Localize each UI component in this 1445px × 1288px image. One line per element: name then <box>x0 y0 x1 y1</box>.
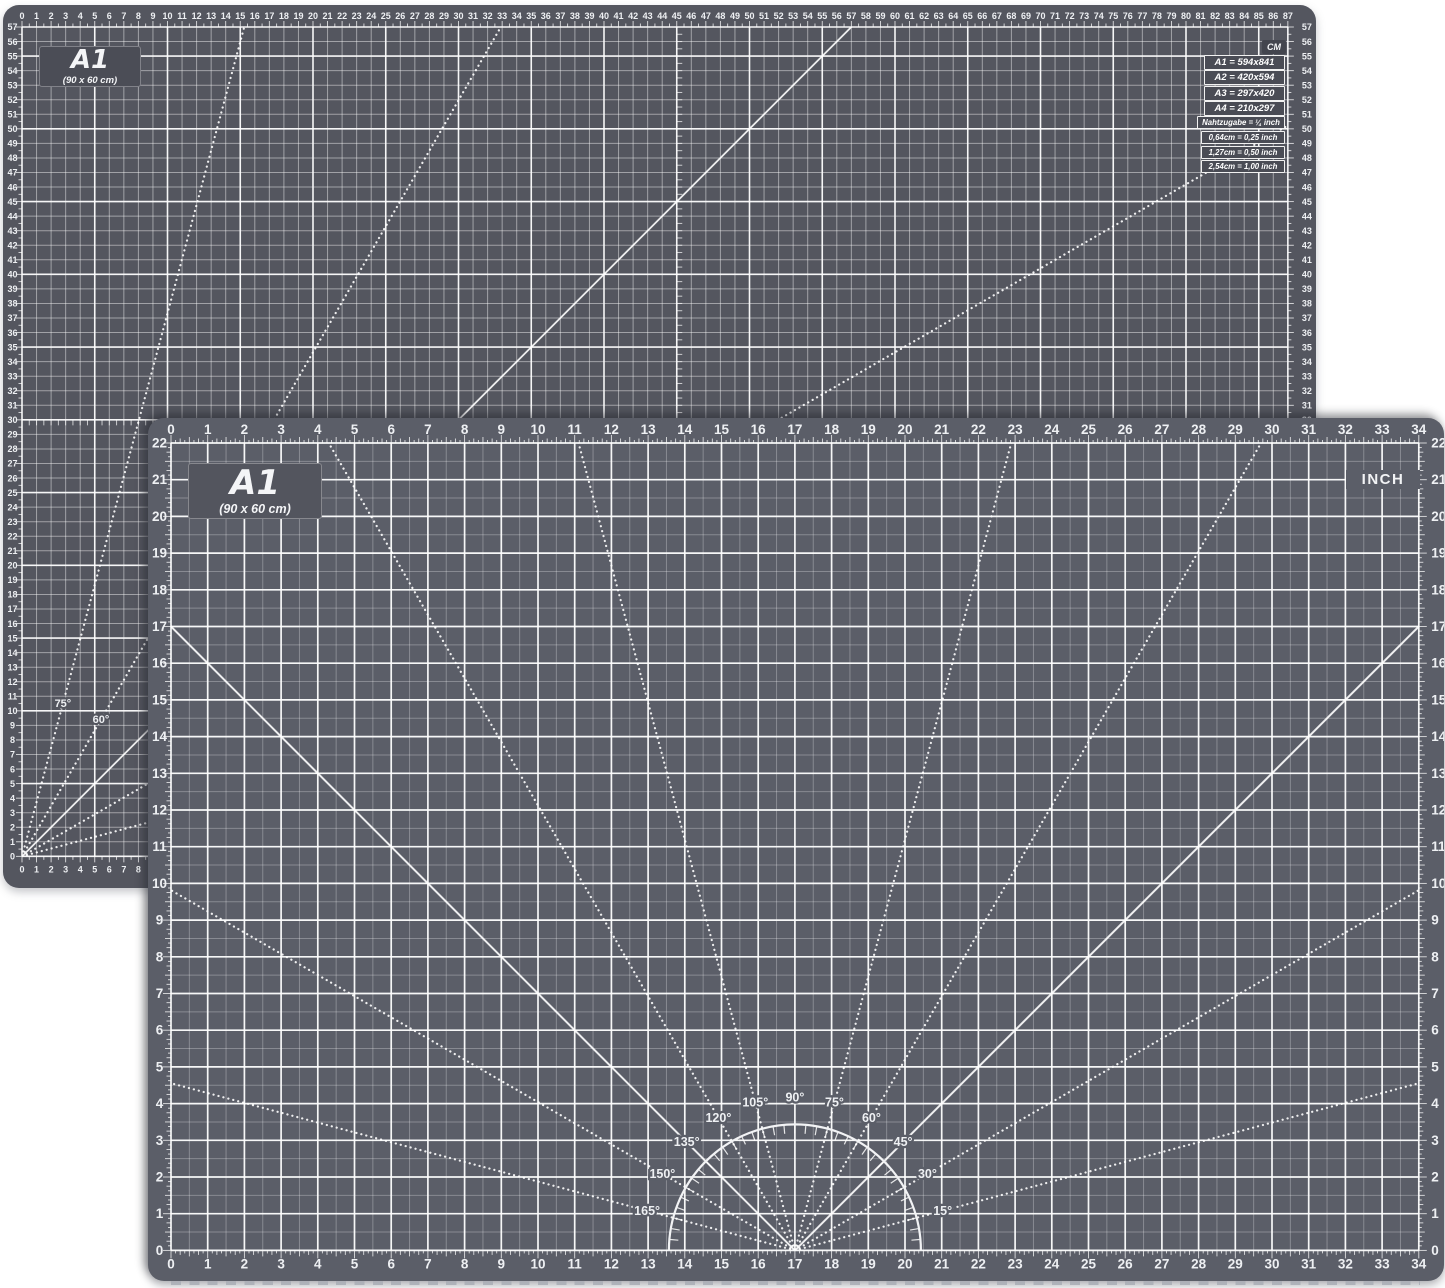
svg-text:30: 30 <box>1264 422 1279 437</box>
svg-text:40: 40 <box>7 270 17 280</box>
svg-text:30: 30 <box>1264 1256 1279 1271</box>
svg-text:79: 79 <box>1166 11 1176 21</box>
svg-text:7: 7 <box>121 864 126 874</box>
svg-text:13: 13 <box>1431 766 1444 781</box>
svg-text:35: 35 <box>7 342 17 352</box>
svg-text:31: 31 <box>1301 1256 1317 1271</box>
svg-text:0: 0 <box>10 852 15 862</box>
svg-text:13: 13 <box>206 11 216 21</box>
svg-text:120°: 120° <box>705 1111 731 1125</box>
svg-text:45°: 45° <box>894 1135 913 1149</box>
svg-text:37: 37 <box>1302 313 1312 323</box>
svg-text:25: 25 <box>381 11 391 21</box>
svg-text:12: 12 <box>192 11 202 21</box>
svg-text:24: 24 <box>7 502 17 512</box>
svg-text:49: 49 <box>730 11 740 21</box>
svg-text:32: 32 <box>483 11 493 21</box>
svg-text:29: 29 <box>1228 422 1243 437</box>
svg-text:65: 65 <box>963 11 973 21</box>
svg-text:44: 44 <box>657 11 667 21</box>
svg-text:14: 14 <box>677 422 693 437</box>
svg-text:57: 57 <box>7 22 17 32</box>
svg-text:0: 0 <box>1431 1243 1439 1258</box>
svg-text:33: 33 <box>1302 371 1312 381</box>
svg-text:31: 31 <box>1302 401 1312 411</box>
svg-text:7: 7 <box>10 750 15 760</box>
svg-text:19: 19 <box>861 1256 876 1271</box>
svg-text:30: 30 <box>453 11 463 21</box>
svg-text:75°: 75° <box>55 698 72 710</box>
svg-text:34: 34 <box>1411 1256 1427 1271</box>
svg-text:10: 10 <box>530 1256 545 1271</box>
svg-text:58: 58 <box>861 11 871 21</box>
svg-text:22: 22 <box>971 422 986 437</box>
svg-text:19: 19 <box>152 546 167 561</box>
svg-text:30: 30 <box>7 415 17 425</box>
svg-text:11: 11 <box>152 839 167 854</box>
svg-text:3: 3 <box>277 422 285 437</box>
svg-text:105°: 105° <box>742 1096 768 1110</box>
svg-text:12: 12 <box>604 1256 619 1271</box>
svg-text:3: 3 <box>63 864 68 874</box>
svg-text:55: 55 <box>817 11 827 21</box>
svg-text:15: 15 <box>1431 692 1444 707</box>
svg-text:1: 1 <box>10 837 15 847</box>
svg-text:15: 15 <box>235 11 245 21</box>
svg-text:17: 17 <box>152 619 167 634</box>
mat-dimensions: (90 x 60 cm) <box>63 75 117 86</box>
svg-text:11: 11 <box>1431 839 1444 854</box>
svg-text:21: 21 <box>152 472 168 487</box>
svg-text:4: 4 <box>78 864 83 874</box>
svg-text:33: 33 <box>1375 1256 1391 1271</box>
svg-text:1: 1 <box>204 422 212 437</box>
svg-text:1: 1 <box>34 11 39 21</box>
svg-text:33: 33 <box>7 371 17 381</box>
svg-text:38: 38 <box>7 299 17 309</box>
svg-text:15°: 15° <box>933 1204 952 1218</box>
svg-text:51: 51 <box>759 11 769 21</box>
svg-text:42: 42 <box>7 240 17 250</box>
svg-text:60: 60 <box>890 11 900 21</box>
svg-text:68: 68 <box>1006 11 1016 21</box>
svg-text:4: 4 <box>314 422 322 437</box>
svg-text:24: 24 <box>366 11 376 21</box>
svg-text:19: 19 <box>293 11 303 21</box>
svg-text:29: 29 <box>1228 1256 1243 1271</box>
svg-text:15: 15 <box>152 692 168 707</box>
svg-text:14: 14 <box>1431 729 1444 744</box>
svg-text:16: 16 <box>7 619 17 629</box>
svg-text:21: 21 <box>7 546 17 556</box>
svg-text:12: 12 <box>152 803 167 818</box>
svg-text:52: 52 <box>774 11 784 21</box>
svg-text:33: 33 <box>1375 422 1391 437</box>
svg-text:28: 28 <box>7 444 17 454</box>
svg-text:4: 4 <box>10 793 15 803</box>
svg-text:17: 17 <box>1431 619 1444 634</box>
svg-text:56: 56 <box>832 11 842 21</box>
svg-text:3: 3 <box>1431 1133 1439 1148</box>
svg-text:34: 34 <box>1302 357 1312 367</box>
svg-text:10: 10 <box>7 706 17 716</box>
svg-text:26: 26 <box>395 11 405 21</box>
svg-text:50: 50 <box>7 124 17 134</box>
svg-text:0: 0 <box>156 1243 164 1258</box>
svg-text:24: 24 <box>1044 1256 1060 1271</box>
svg-text:36: 36 <box>1302 328 1312 338</box>
svg-text:31: 31 <box>7 401 17 411</box>
svg-text:37: 37 <box>7 313 17 323</box>
svg-text:25: 25 <box>1081 422 1097 437</box>
svg-text:21: 21 <box>934 422 950 437</box>
svg-text:41: 41 <box>1302 255 1312 265</box>
svg-text:23: 23 <box>7 517 17 527</box>
svg-text:18: 18 <box>7 590 17 600</box>
unit-label-inch: INCH <box>1346 470 1420 489</box>
svg-text:8: 8 <box>10 735 15 745</box>
svg-text:35: 35 <box>526 11 536 21</box>
svg-text:3: 3 <box>277 1256 285 1271</box>
svg-text:34: 34 <box>512 11 522 21</box>
svg-text:29: 29 <box>7 430 17 440</box>
svg-text:22: 22 <box>337 11 347 21</box>
svg-text:55: 55 <box>7 51 17 61</box>
svg-text:2: 2 <box>1431 1170 1439 1185</box>
inch-grid-graphics: 15°30°45°60°75°90°105°120°135°150°165°00… <box>148 418 1444 1281</box>
svg-text:8: 8 <box>156 949 164 964</box>
svg-text:46: 46 <box>7 182 17 192</box>
svg-text:56: 56 <box>7 37 17 47</box>
svg-text:10: 10 <box>152 876 167 891</box>
svg-text:4: 4 <box>314 1256 322 1271</box>
svg-text:60°: 60° <box>862 1111 881 1125</box>
svg-text:54: 54 <box>7 66 17 76</box>
svg-text:22: 22 <box>1431 436 1444 451</box>
svg-text:53: 53 <box>7 80 17 90</box>
svg-text:15: 15 <box>7 633 17 643</box>
svg-text:150°: 150° <box>649 1167 675 1181</box>
svg-text:9: 9 <box>10 721 15 731</box>
svg-text:12: 12 <box>7 677 17 687</box>
svg-text:87: 87 <box>1283 11 1293 21</box>
svg-text:52: 52 <box>7 95 17 105</box>
protractor-rays <box>148 418 1444 1250</box>
svg-text:23: 23 <box>352 11 362 21</box>
svg-text:15: 15 <box>714 422 730 437</box>
svg-text:29: 29 <box>439 11 449 21</box>
svg-text:4: 4 <box>1431 1096 1439 1111</box>
svg-text:90°: 90° <box>785 1090 804 1104</box>
svg-text:59: 59 <box>875 11 885 21</box>
svg-text:5: 5 <box>92 11 97 21</box>
svg-text:135°: 135° <box>674 1135 700 1149</box>
svg-text:30°: 30° <box>918 1167 937 1181</box>
svg-text:1: 1 <box>204 1256 212 1271</box>
svg-text:21: 21 <box>934 1256 950 1271</box>
svg-text:9: 9 <box>498 422 506 437</box>
svg-text:61: 61 <box>905 11 915 21</box>
svg-text:37: 37 <box>555 11 565 21</box>
svg-text:4: 4 <box>156 1096 164 1111</box>
svg-text:42: 42 <box>628 11 638 21</box>
svg-text:54: 54 <box>1302 66 1312 76</box>
svg-text:25: 25 <box>1081 1256 1097 1271</box>
svg-text:25: 25 <box>7 488 17 498</box>
svg-text:32: 32 <box>7 386 17 396</box>
svg-text:48: 48 <box>715 11 725 21</box>
svg-text:16: 16 <box>751 1256 767 1271</box>
svg-text:34: 34 <box>7 357 17 367</box>
svg-text:38: 38 <box>570 11 580 21</box>
svg-text:6: 6 <box>107 11 112 21</box>
svg-text:21: 21 <box>1431 472 1444 487</box>
svg-text:2: 2 <box>10 822 15 832</box>
svg-text:22: 22 <box>7 531 17 541</box>
svg-text:50: 50 <box>1302 124 1312 134</box>
svg-text:16: 16 <box>751 422 767 437</box>
svg-text:16: 16 <box>250 11 260 21</box>
svg-text:18: 18 <box>824 422 840 437</box>
svg-text:69: 69 <box>1021 11 1031 21</box>
svg-text:31: 31 <box>1301 422 1317 437</box>
cutting-mat-front-inch-side: 15°30°45°60°75°90°105°120°135°150°165°00… <box>148 418 1444 1281</box>
svg-text:11: 11 <box>568 422 583 437</box>
svg-text:18: 18 <box>1431 582 1444 597</box>
svg-text:9: 9 <box>498 1256 506 1271</box>
svg-text:64: 64 <box>948 11 958 21</box>
svg-text:45: 45 <box>7 197 17 207</box>
svg-text:9: 9 <box>1431 913 1439 928</box>
mat-dimensions: (90 x 60 cm) <box>219 502 291 516</box>
svg-text:18: 18 <box>152 582 168 597</box>
svg-text:23: 23 <box>1008 422 1024 437</box>
svg-text:11: 11 <box>8 692 18 702</box>
svg-text:5: 5 <box>156 1059 164 1074</box>
svg-text:67: 67 <box>992 11 1002 21</box>
svg-text:8: 8 <box>136 864 141 874</box>
svg-text:18: 18 <box>279 11 289 21</box>
svg-text:17: 17 <box>264 11 274 21</box>
svg-text:32: 32 <box>1302 386 1312 396</box>
svg-text:5: 5 <box>1431 1059 1439 1074</box>
svg-text:39: 39 <box>584 11 594 21</box>
svg-text:80: 80 <box>1181 11 1191 21</box>
svg-text:27: 27 <box>7 459 17 469</box>
svg-text:6: 6 <box>10 764 15 774</box>
svg-text:10: 10 <box>530 422 545 437</box>
svg-text:42: 42 <box>1302 240 1312 250</box>
svg-text:17: 17 <box>787 1256 802 1271</box>
svg-text:66: 66 <box>977 11 987 21</box>
svg-text:12: 12 <box>604 422 619 437</box>
svg-text:53: 53 <box>1302 80 1312 90</box>
mat-size-badge: A1 (90 x 60 cm) <box>188 463 322 519</box>
svg-text:20: 20 <box>152 509 167 524</box>
svg-text:8: 8 <box>1431 949 1439 964</box>
svg-text:52: 52 <box>1302 95 1312 105</box>
svg-text:16: 16 <box>1431 656 1444 671</box>
svg-text:6: 6 <box>156 1023 164 1038</box>
svg-text:43: 43 <box>1302 226 1312 236</box>
svg-text:49: 49 <box>1302 139 1312 149</box>
svg-text:20: 20 <box>897 1256 912 1271</box>
svg-text:2: 2 <box>241 1256 249 1271</box>
svg-text:8: 8 <box>461 422 469 437</box>
svg-text:43: 43 <box>643 11 653 21</box>
svg-text:2: 2 <box>156 1170 164 1185</box>
angle-labels: 60°75° <box>55 698 110 726</box>
svg-text:33: 33 <box>497 11 507 21</box>
svg-text:62: 62 <box>919 11 929 21</box>
svg-text:14: 14 <box>677 1256 693 1271</box>
svg-text:28: 28 <box>1191 422 1207 437</box>
svg-text:1: 1 <box>1431 1206 1439 1221</box>
svg-text:48: 48 <box>7 153 17 163</box>
svg-text:28: 28 <box>1191 1256 1207 1271</box>
svg-text:23: 23 <box>1008 1256 1024 1271</box>
svg-text:3: 3 <box>156 1133 164 1148</box>
svg-text:55: 55 <box>1302 51 1312 61</box>
svg-text:43: 43 <box>7 226 17 236</box>
svg-text:19: 19 <box>7 575 17 585</box>
svg-text:21: 21 <box>323 11 333 21</box>
svg-text:12: 12 <box>1431 803 1444 818</box>
svg-text:35: 35 <box>1302 342 1312 352</box>
svg-text:18: 18 <box>824 1256 840 1271</box>
svg-text:40: 40 <box>599 11 609 21</box>
svg-text:27: 27 <box>1154 422 1169 437</box>
svg-text:26: 26 <box>7 473 17 483</box>
svg-text:15: 15 <box>714 1256 730 1271</box>
svg-text:57: 57 <box>846 11 856 21</box>
svg-text:7: 7 <box>424 1256 432 1271</box>
svg-text:44: 44 <box>1302 211 1312 221</box>
mat-size-name: A1 <box>230 466 280 500</box>
svg-text:13: 13 <box>152 766 168 781</box>
svg-text:3: 3 <box>10 808 15 818</box>
svg-text:72: 72 <box>1065 11 1075 21</box>
svg-text:77: 77 <box>1137 11 1147 21</box>
svg-text:5: 5 <box>351 1256 359 1271</box>
svg-text:83: 83 <box>1225 11 1235 21</box>
svg-text:1: 1 <box>156 1206 164 1221</box>
svg-text:34: 34 <box>1411 422 1427 437</box>
svg-text:50: 50 <box>744 11 754 21</box>
svg-text:39: 39 <box>1302 284 1312 294</box>
svg-text:31: 31 <box>468 11 478 21</box>
svg-text:0: 0 <box>19 11 24 21</box>
svg-text:46: 46 <box>1302 182 1312 192</box>
svg-text:74: 74 <box>1094 11 1104 21</box>
svg-text:2: 2 <box>241 422 249 437</box>
svg-text:36: 36 <box>541 11 551 21</box>
svg-text:7: 7 <box>156 986 164 1001</box>
svg-text:20: 20 <box>7 561 17 571</box>
svg-text:13: 13 <box>7 662 17 672</box>
svg-text:27: 27 <box>410 11 420 21</box>
svg-text:57: 57 <box>1302 22 1312 32</box>
svg-text:75: 75 <box>1108 11 1118 21</box>
svg-text:84: 84 <box>1239 11 1249 21</box>
svg-text:14: 14 <box>7 648 17 658</box>
svg-text:19: 19 <box>1431 546 1444 561</box>
svg-text:9: 9 <box>156 913 164 928</box>
svg-text:63: 63 <box>934 11 944 21</box>
svg-text:24: 24 <box>1044 422 1060 437</box>
svg-text:7: 7 <box>121 11 126 21</box>
svg-text:41: 41 <box>614 11 624 21</box>
svg-text:4: 4 <box>78 11 83 21</box>
svg-text:14: 14 <box>152 729 168 744</box>
svg-text:36: 36 <box>7 328 17 338</box>
svg-text:20: 20 <box>897 422 912 437</box>
svg-text:165°: 165° <box>634 1204 660 1218</box>
svg-text:0: 0 <box>167 422 175 437</box>
svg-text:27: 27 <box>1154 1256 1169 1271</box>
svg-text:11: 11 <box>177 11 187 21</box>
svg-text:14: 14 <box>221 11 231 21</box>
svg-text:20: 20 <box>308 11 318 21</box>
svg-text:6: 6 <box>107 864 112 874</box>
svg-text:75°: 75° <box>825 1096 844 1110</box>
svg-text:70: 70 <box>1035 11 1045 21</box>
svg-text:32: 32 <box>1338 1256 1353 1271</box>
svg-text:5: 5 <box>351 422 359 437</box>
svg-text:48: 48 <box>1302 153 1312 163</box>
svg-text:0: 0 <box>19 864 24 874</box>
mat-size-badge: A1 (90 x 60 cm) <box>39 46 141 87</box>
svg-text:11: 11 <box>568 1256 583 1271</box>
svg-text:8: 8 <box>136 11 141 21</box>
svg-text:22: 22 <box>152 436 167 451</box>
svg-text:39: 39 <box>7 284 17 294</box>
svg-text:20: 20 <box>1431 509 1444 524</box>
svg-text:17: 17 <box>7 604 17 614</box>
svg-text:0: 0 <box>167 1256 175 1271</box>
svg-text:47: 47 <box>701 11 711 21</box>
svg-text:60°: 60° <box>93 714 110 726</box>
svg-text:49: 49 <box>7 139 17 149</box>
svg-text:47: 47 <box>7 168 17 178</box>
svg-text:73: 73 <box>1079 11 1089 21</box>
svg-text:51: 51 <box>7 110 17 120</box>
svg-text:82: 82 <box>1210 11 1220 21</box>
svg-text:47: 47 <box>1302 168 1312 178</box>
svg-text:13: 13 <box>641 1256 657 1271</box>
svg-text:81: 81 <box>1196 11 1206 21</box>
svg-text:8: 8 <box>461 1256 469 1271</box>
svg-text:6: 6 <box>1431 1023 1439 1038</box>
svg-text:26: 26 <box>1118 1256 1134 1271</box>
svg-text:9: 9 <box>150 11 155 21</box>
svg-text:44: 44 <box>7 211 17 221</box>
svg-text:7: 7 <box>1431 986 1439 1001</box>
svg-text:41: 41 <box>7 255 17 265</box>
svg-text:40: 40 <box>1302 270 1312 280</box>
svg-text:2: 2 <box>49 11 54 21</box>
mat-size-name: A1 <box>71 47 109 73</box>
svg-text:22: 22 <box>971 1256 986 1271</box>
svg-text:1: 1 <box>34 864 39 874</box>
svg-text:6: 6 <box>387 422 395 437</box>
svg-text:54: 54 <box>803 11 813 21</box>
svg-text:38: 38 <box>1302 299 1312 309</box>
svg-text:13: 13 <box>641 422 657 437</box>
svg-text:86: 86 <box>1268 11 1278 21</box>
svg-text:5: 5 <box>92 864 97 874</box>
cutting-mats-product-image: 60°75°0011223344556677889910101111121213… <box>0 0 1445 1288</box>
